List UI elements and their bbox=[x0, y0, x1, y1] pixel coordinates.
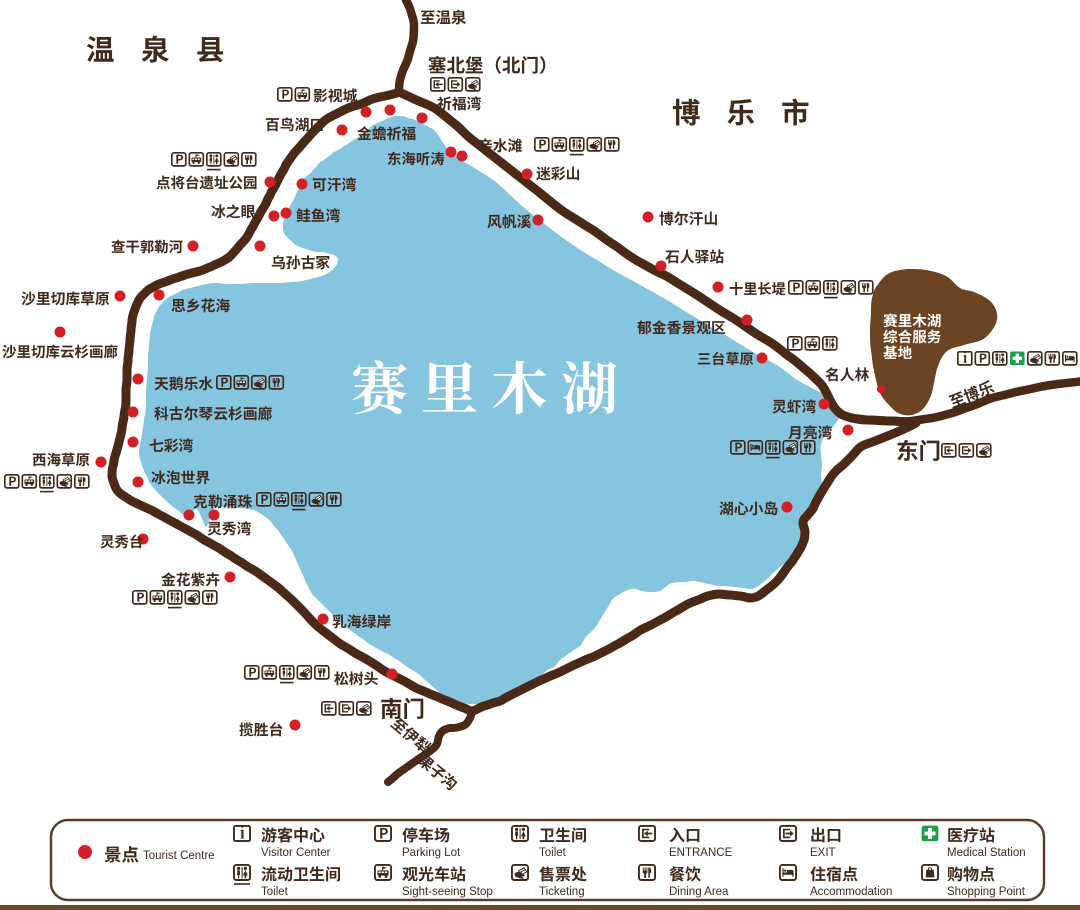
svg-text:Shopping Point: Shopping Point bbox=[947, 886, 1026, 898]
svg-text:ENTRANCE: ENTRANCE bbox=[669, 847, 733, 859]
svg-text:Medical Station: Medical Station bbox=[947, 847, 1026, 859]
svg-text:Toilet: Toilet bbox=[261, 886, 289, 898]
svg-text:Parking Lot: Parking Lot bbox=[402, 847, 461, 859]
svg-text:Visitor Center: Visitor Center bbox=[261, 847, 331, 859]
svg-text:EXIT: EXIT bbox=[810, 847, 836, 859]
svg-text:Ticketing: Ticketing bbox=[539, 886, 585, 898]
svg-text:Sight-seeing Stop: Sight-seeing Stop bbox=[402, 886, 493, 898]
svg-text:Dining Area: Dining Area bbox=[669, 886, 729, 898]
svg-text:Toilet: Toilet bbox=[539, 847, 567, 859]
svg-text:Tourist Centre: Tourist Centre bbox=[143, 850, 215, 862]
svg-text:Accommodation: Accommodation bbox=[810, 886, 892, 898]
